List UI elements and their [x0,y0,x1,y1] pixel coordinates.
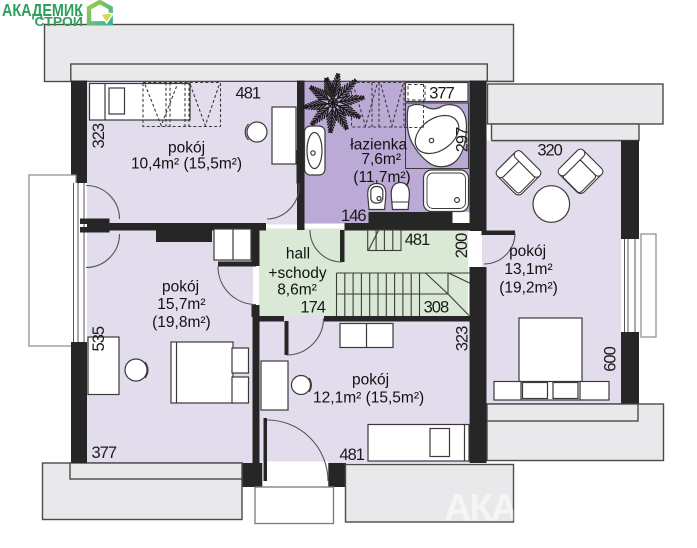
svg-text:323: 323 [90,123,108,148]
svg-text:174: 174 [300,299,325,317]
svg-text:600: 600 [602,346,620,371]
svg-text:377: 377 [429,85,454,103]
svg-text:8,6m²: 8,6m² [277,282,317,299]
svg-text:(11,7m²): (11,7m²) [353,169,410,186]
svg-text:15,7m²: 15,7m² [157,296,205,313]
svg-text:481: 481 [339,446,364,464]
svg-text:535: 535 [90,326,108,351]
svg-text:(19,8m²): (19,8m²) [152,314,211,331]
svg-text:481: 481 [236,85,261,103]
svg-text:7,6m²: 7,6m² [361,151,401,168]
svg-text:308: 308 [424,299,449,317]
svg-text:200: 200 [453,233,471,258]
svg-text:146: 146 [341,207,366,225]
svg-text:СТРОЙ: СТРОЙ [35,14,84,29]
svg-text:hall: hall [286,246,310,263]
svg-text:12,1m² (15,5m²): 12,1m² (15,5m²) [313,390,424,407]
svg-text:pokój: pokój [162,279,199,296]
svg-text:pokój: pokój [352,372,389,389]
svg-text:(19,2m²): (19,2m²) [499,280,558,297]
svg-text:pokój: pokój [509,243,546,260]
svg-text:320: 320 [537,142,562,160]
svg-text:377: 377 [92,444,117,462]
svg-text:10,4m² (15,5m²): 10,4m² (15,5m²) [131,155,242,172]
svg-text:pokój: pokój [168,140,205,157]
svg-text:+schody: +schody [268,265,326,282]
svg-text:481: 481 [405,231,430,249]
svg-text:323: 323 [454,326,472,351]
svg-text:297: 297 [454,127,472,152]
svg-text:13,1m²: 13,1m² [504,261,552,278]
